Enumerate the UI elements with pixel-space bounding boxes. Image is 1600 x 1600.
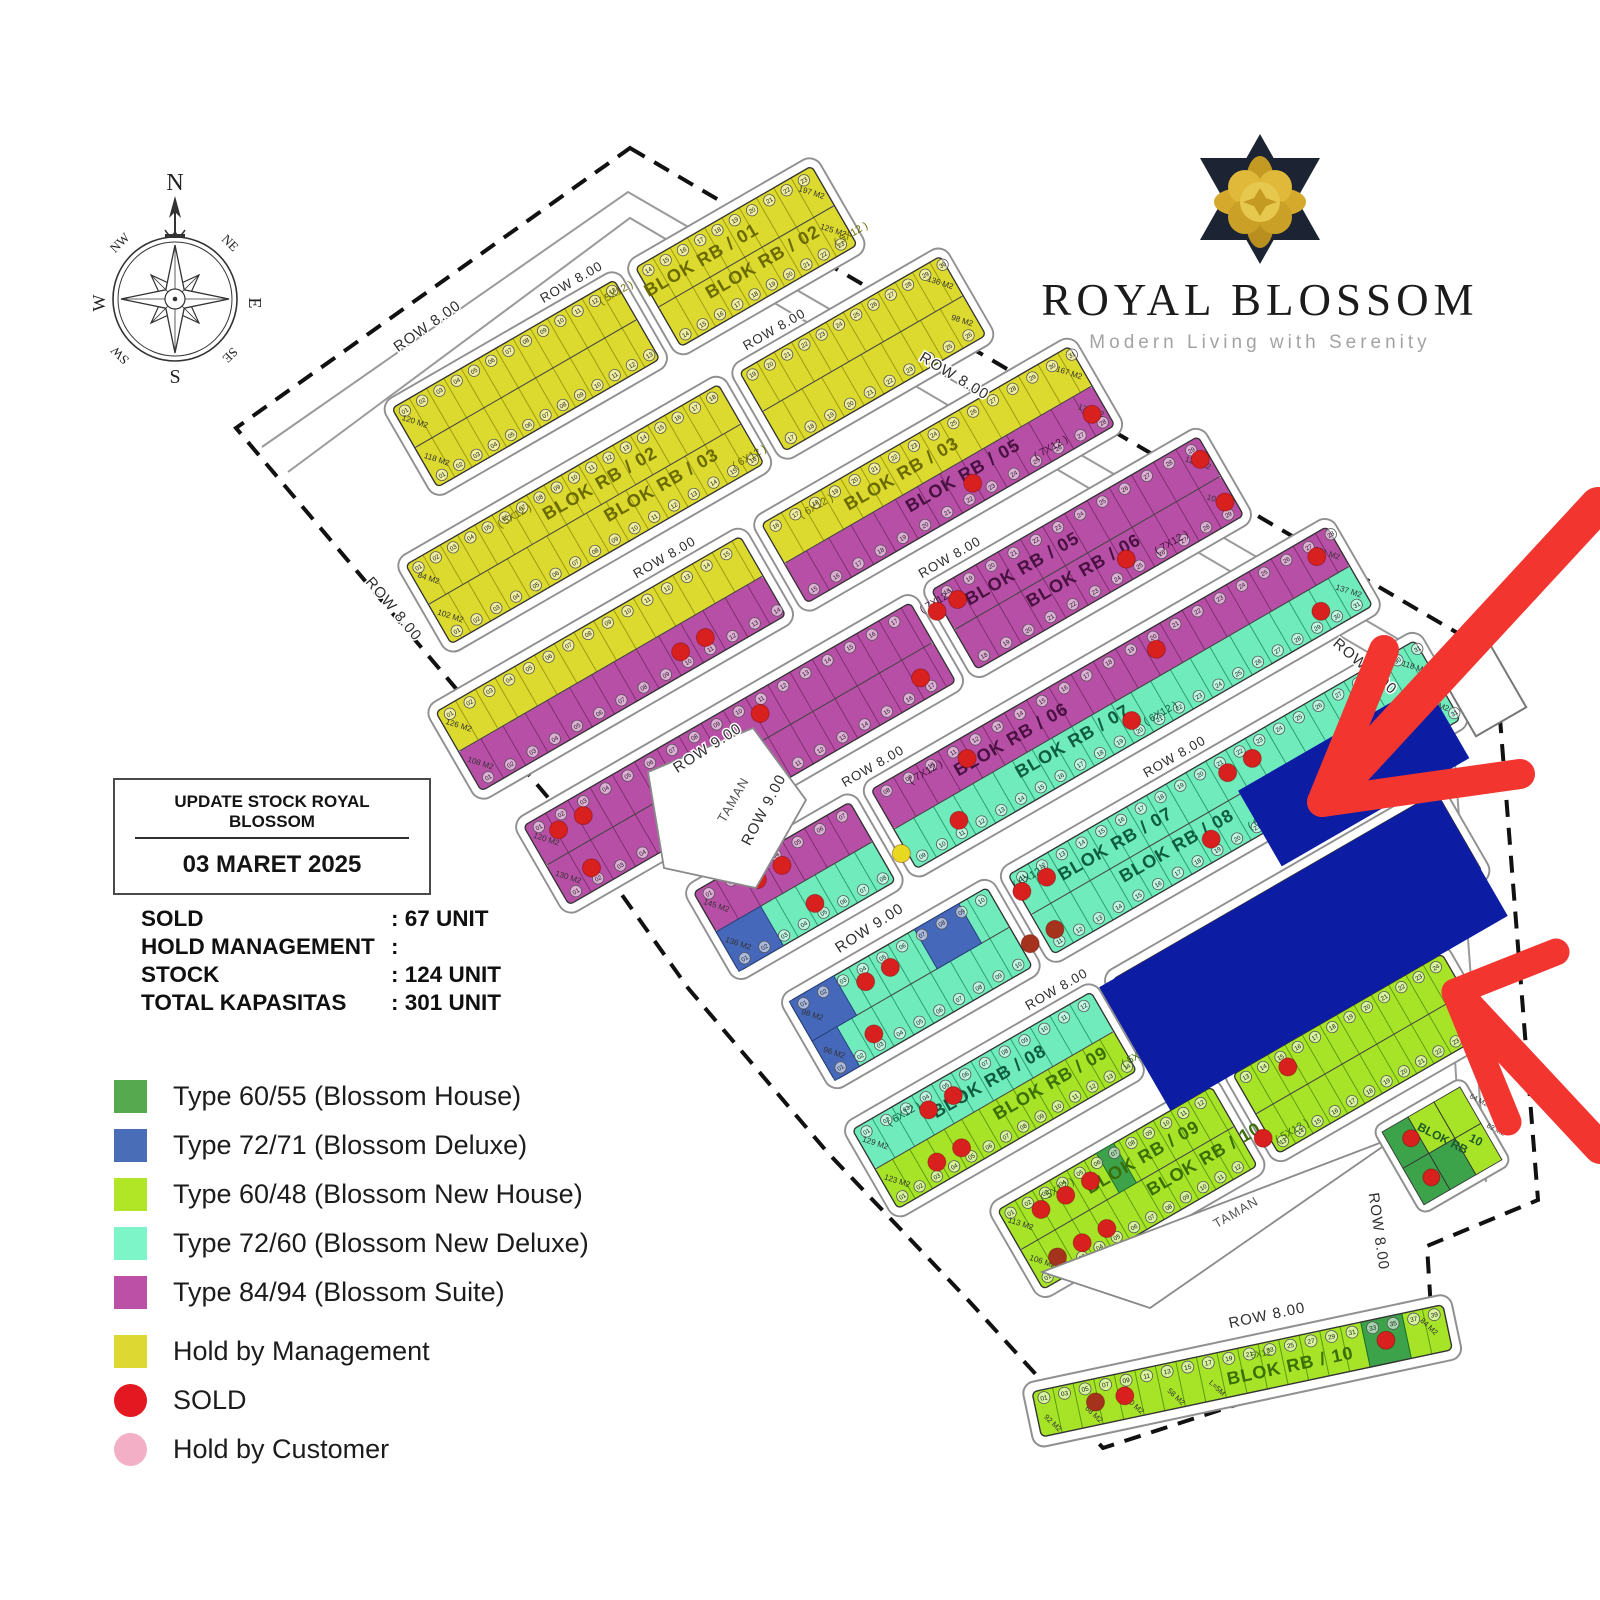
- compass-s: S: [169, 366, 180, 388]
- stat-value: : 67 UNIT: [391, 906, 489, 932]
- road-label: ROW 8.00: [391, 297, 465, 356]
- legend-swatch: [114, 1178, 147, 1211]
- legend-item-4: Type 84/94 (Blossom Suite): [114, 1268, 589, 1317]
- compass-e: E: [245, 298, 265, 309]
- road-label: ROW 8.00: [1365, 1192, 1393, 1272]
- legend-swatch: [114, 1433, 147, 1466]
- legend-swatch: [114, 1276, 147, 1309]
- compass-rose: N NE E SE S SW W NW: [78, 168, 283, 403]
- update-stock-box: UPDATE STOCK ROYAL BLOSSOM 03 MARET 2025: [113, 778, 431, 895]
- legend-item-6: SOLD: [114, 1376, 589, 1425]
- legend-label: Hold by Management: [173, 1336, 430, 1367]
- compass-nw: NW: [107, 229, 133, 255]
- compass-se: SE: [220, 345, 241, 366]
- compass-n: N: [166, 170, 183, 196]
- legend-item-2: Type 60/48 (Blossom New House): [114, 1170, 589, 1219]
- stock-stats: SOLD : 67 UNIT HOLD MANAGEMENT : STOCK :…: [141, 905, 501, 1017]
- legend-item-5: Hold by Management: [114, 1327, 589, 1376]
- legend-label: Hold by Customer: [173, 1434, 389, 1465]
- siteplan-flyer: 0102030405060708091011121314151617181920…: [0, 0, 1600, 1600]
- legend-label: Type 84/94 (Blossom Suite): [173, 1277, 505, 1308]
- stat-hold-management: HOLD MANAGEMENT :: [141, 933, 501, 961]
- legend-label: Type 60/48 (Blossom New House): [173, 1179, 583, 1210]
- stat-label: SOLD: [141, 906, 391, 932]
- stat-label: STOCK: [141, 962, 391, 988]
- update-stock-title: UPDATE STOCK ROYAL BLOSSOM: [135, 792, 409, 839]
- compass-w: W: [89, 295, 109, 312]
- compass-star-icon: [113, 196, 237, 361]
- compass-ne: NE: [219, 231, 242, 254]
- logo-tagline: Modern Living with Serenity: [1010, 332, 1510, 354]
- logo-title: ROYAL BLOSSOM: [1010, 274, 1510, 326]
- stat-total-kapasitas: TOTAL KAPASITAS : 301 UNIT: [141, 989, 501, 1017]
- stat-label: TOTAL KAPASITAS: [141, 990, 391, 1016]
- legend-label: Type 72/71 (Blossom Deluxe): [173, 1130, 527, 1161]
- legend-item-0: Type 60/55 (Blossom House): [114, 1072, 589, 1121]
- legend-label: Type 60/55 (Blossom House): [173, 1081, 521, 1112]
- legend-swatch: [114, 1335, 147, 1368]
- legend-swatch: [114, 1384, 147, 1417]
- legend: Type 60/55 (Blossom House)Type 72/71 (Bl…: [114, 1072, 589, 1474]
- stat-value: : 301 UNIT: [391, 990, 501, 1016]
- legend-label: SOLD: [173, 1385, 247, 1416]
- compass-sw: SW: [107, 343, 132, 368]
- update-stock-date: 03 MARET 2025: [115, 851, 429, 879]
- lotus-logo-icon: [1185, 130, 1335, 272]
- stat-stock: STOCK : 124 UNIT: [141, 961, 501, 989]
- legend-swatch: [114, 1129, 147, 1162]
- legend-swatch: [114, 1227, 147, 1260]
- legend-item-7: Hold by Customer: [114, 1425, 589, 1474]
- legend-item-1: Type 72/71 (Blossom Deluxe): [114, 1121, 589, 1170]
- stat-label: HOLD MANAGEMENT: [141, 934, 391, 960]
- stat-value: :: [391, 934, 399, 960]
- logo: ROYAL BLOSSOM Modern Living with Serenit…: [1010, 130, 1510, 354]
- legend-swatch: [114, 1080, 147, 1113]
- legend-item-3: Type 72/60 (Blossom New Deluxe): [114, 1219, 589, 1268]
- stat-sold: SOLD : 67 UNIT: [141, 905, 501, 933]
- legend-label: Type 72/60 (Blossom New Deluxe): [173, 1228, 589, 1259]
- stat-value: : 124 UNIT: [391, 962, 501, 988]
